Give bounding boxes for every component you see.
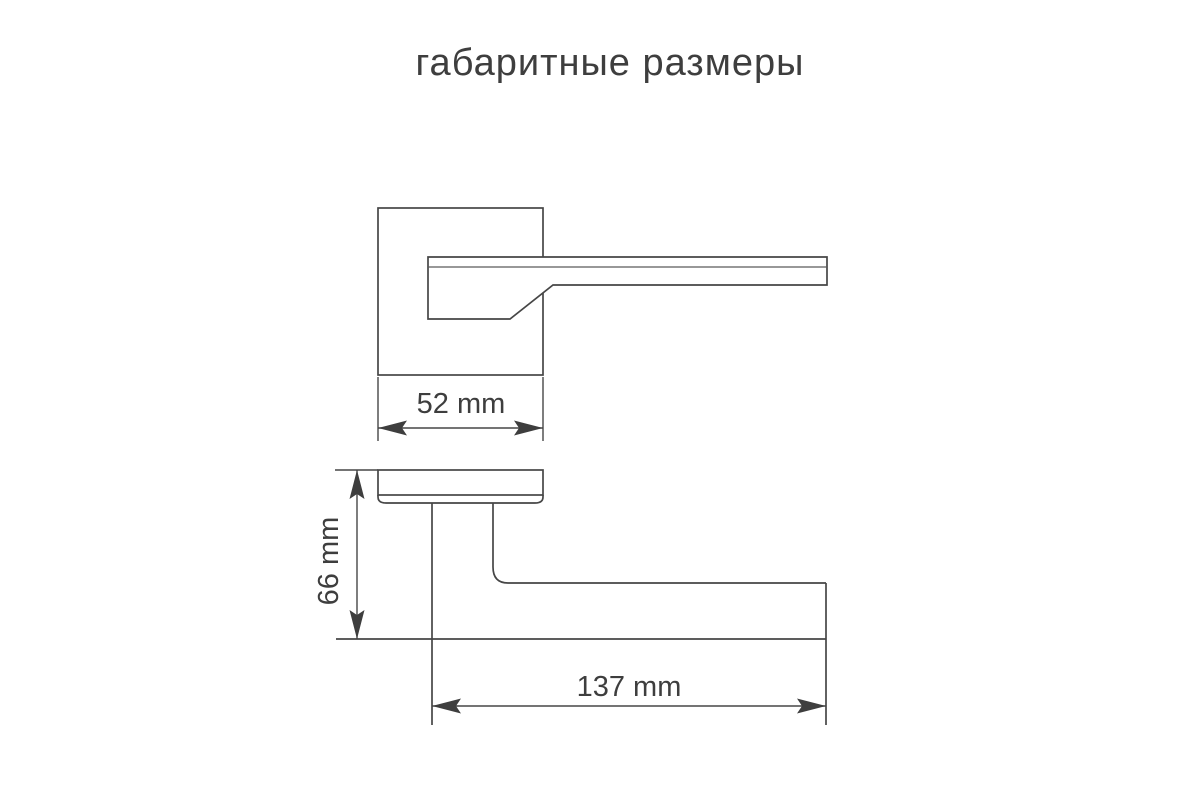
dimension-rosette-width: 52 mm <box>378 377 543 441</box>
dimension-label-handle-length: 137 mm <box>577 671 682 703</box>
lever-front-outline <box>428 257 827 319</box>
dimension-label-handle-height: 66 mm <box>313 517 345 606</box>
neck-and-lever-top-edge <box>493 503 826 583</box>
dimension-drawing: 52 mm 66 mm <box>0 0 1200 800</box>
dimension-handle-height: 66 mm <box>313 470 365 639</box>
dimension-label-rosette-width: 52 mm <box>417 388 506 420</box>
technical-drawing-page: габаритные размеры 52 mm <box>0 0 1200 800</box>
front-view <box>378 208 827 375</box>
dimension-handle-length: 137 mm <box>432 671 826 714</box>
rosette-side-outline <box>378 470 543 495</box>
rosette-side-lip <box>378 495 543 503</box>
